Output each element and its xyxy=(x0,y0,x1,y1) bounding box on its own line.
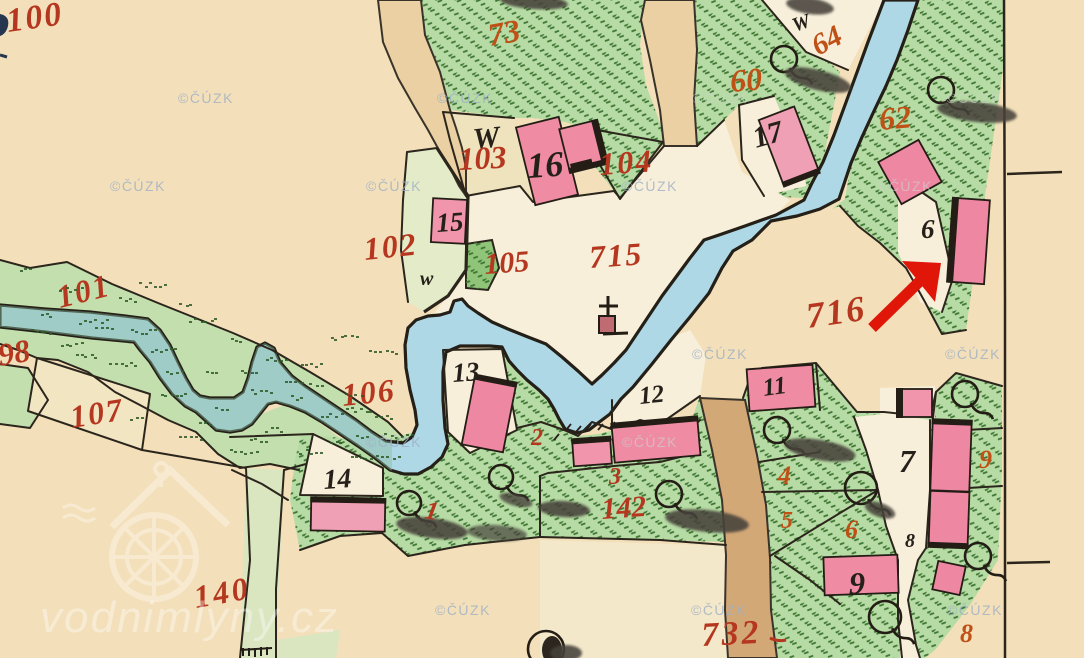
svg-text:9: 9 xyxy=(979,445,992,474)
svg-text:6: 6 xyxy=(921,214,935,244)
svg-text:©ČÚZK: ©ČÚZK xyxy=(366,178,422,194)
svg-text:©ČÚZK: ©ČÚZK xyxy=(945,346,1001,362)
svg-text:106: 106 xyxy=(340,372,397,413)
svg-text:©ČÚZK: ©ČÚZK xyxy=(947,602,1003,618)
svg-text:8: 8 xyxy=(960,619,973,648)
svg-text:7: 7 xyxy=(899,443,917,479)
svg-text:5: 5 xyxy=(781,508,793,534)
svg-text:14: 14 xyxy=(322,463,352,496)
svg-text:16: 16 xyxy=(526,144,565,186)
svg-text:4: 4 xyxy=(777,461,791,490)
svg-text:13: 13 xyxy=(451,356,480,388)
svg-text:732: 732 xyxy=(700,614,762,654)
svg-text:105: 105 xyxy=(483,245,530,281)
svg-text:w: w xyxy=(420,268,434,290)
svg-text:©ČÚZK: ©ČÚZK xyxy=(435,602,491,618)
svg-text:©ČÚZK: ©ČÚZK xyxy=(692,90,748,106)
svg-text:6: 6 xyxy=(845,515,858,544)
svg-text:62: 62 xyxy=(877,98,912,137)
svg-text:142: 142 xyxy=(600,490,647,526)
svg-text:104: 104 xyxy=(598,142,654,182)
svg-text:9: 9 xyxy=(849,565,865,601)
svg-text:©ČÚZK: ©ČÚZK xyxy=(692,346,748,362)
svg-text:3: 3 xyxy=(608,464,621,490)
svg-text:2: 2 xyxy=(530,425,543,451)
svg-text:15: 15 xyxy=(435,206,464,238)
svg-text:©ČÚZK: ©ČÚZK xyxy=(691,602,747,618)
svg-text:©ČÚZK: ©ČÚZK xyxy=(877,178,933,194)
svg-text:©ČÚZK: ©ČÚZK xyxy=(366,434,422,450)
svg-text:102: 102 xyxy=(362,226,419,267)
svg-text:715: 715 xyxy=(588,235,644,275)
svg-text:11: 11 xyxy=(761,372,788,402)
svg-text:©ČÚZK: ©ČÚZK xyxy=(622,434,678,450)
svg-text:©ČÚZK: ©ČÚZK xyxy=(110,178,166,194)
svg-text:716: 716 xyxy=(804,288,869,336)
svg-text:103: 103 xyxy=(457,139,507,177)
svg-text:12: 12 xyxy=(638,381,666,410)
svg-text:©ČÚZK: ©ČÚZK xyxy=(437,90,493,106)
svg-text:vodnimlyny.cz: vodnimlyny.cz xyxy=(40,593,339,642)
svg-text:©ČÚZK: ©ČÚZK xyxy=(946,90,1002,106)
svg-text:©ČÚZK: ©ČÚZK xyxy=(178,90,234,106)
svg-text:©ČÚZK: ©ČÚZK xyxy=(622,178,678,194)
svg-text:73: 73 xyxy=(485,12,523,53)
svg-text:8: 8 xyxy=(905,530,915,552)
